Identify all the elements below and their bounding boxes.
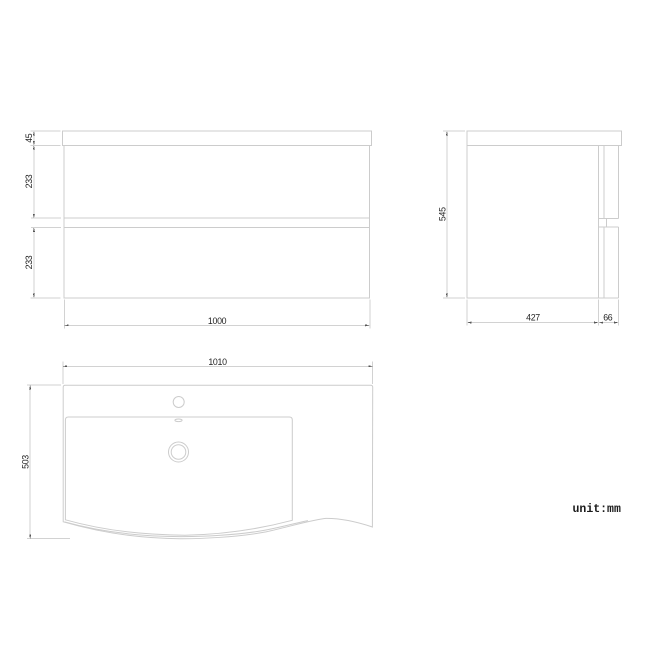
svg-text:1000: 1000 <box>208 316 227 326</box>
svg-text:503: 503 <box>20 455 30 469</box>
svg-text:427: 427 <box>526 313 540 323</box>
svg-text:1010: 1010 <box>208 357 227 367</box>
svg-text:66: 66 <box>603 313 613 323</box>
svg-text:233: 233 <box>24 174 34 188</box>
svg-text:45: 45 <box>24 133 34 143</box>
svg-text:unit:mm: unit:mm <box>573 503 621 516</box>
svg-text:545: 545 <box>438 207 448 221</box>
svg-text:233: 233 <box>24 255 34 269</box>
